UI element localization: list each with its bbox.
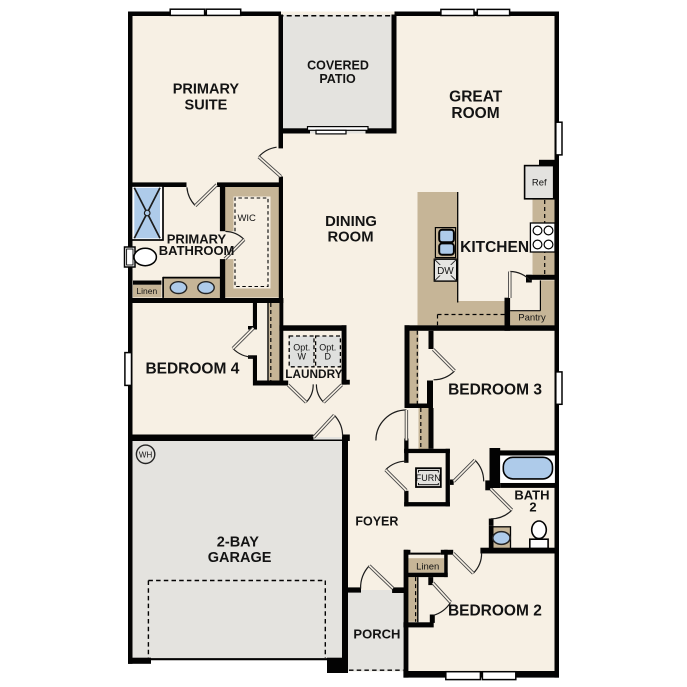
svg-text:BATHROOM: BATHROOM [159, 243, 235, 258]
svg-text:2-BAY: 2-BAY [217, 535, 260, 551]
svg-text:Linen: Linen [136, 286, 157, 296]
svg-text:ROOM: ROOM [451, 105, 499, 122]
svg-text:Linen: Linen [416, 562, 439, 573]
svg-text:PRIMARY: PRIMARY [173, 82, 240, 98]
svg-text:Ref: Ref [532, 178, 547, 189]
svg-text:DW: DW [437, 266, 454, 277]
svg-text:KITCHEN: KITCHEN [460, 239, 529, 256]
svg-text:FURN: FURN [416, 473, 441, 483]
svg-text:Pantry: Pantry [518, 313, 546, 324]
svg-text:W: W [297, 352, 306, 362]
svg-text:COVERED: COVERED [307, 59, 369, 73]
svg-text:PORCH: PORCH [353, 626, 400, 641]
svg-text:BEDROOM 3: BEDROOM 3 [448, 382, 542, 399]
svg-text:DINING: DINING [325, 214, 377, 230]
svg-text:GARAGE: GARAGE [208, 550, 272, 566]
svg-text:D: D [324, 352, 331, 362]
svg-text:BEDROOM 4: BEDROOM 4 [145, 360, 239, 377]
svg-text:WIC: WIC [237, 213, 256, 224]
svg-text:ROOM: ROOM [327, 229, 373, 245]
svg-text:BEDROOM 2: BEDROOM 2 [448, 602, 542, 619]
svg-text:FOYER: FOYER [355, 514, 398, 528]
svg-text:SUITE: SUITE [185, 98, 228, 114]
svg-text:LAUNDRY: LAUNDRY [285, 367, 342, 381]
svg-text:WH: WH [139, 450, 153, 459]
svg-text:GREAT: GREAT [449, 89, 503, 106]
svg-text:PATIO: PATIO [319, 72, 356, 86]
svg-text:2: 2 [529, 500, 536, 515]
